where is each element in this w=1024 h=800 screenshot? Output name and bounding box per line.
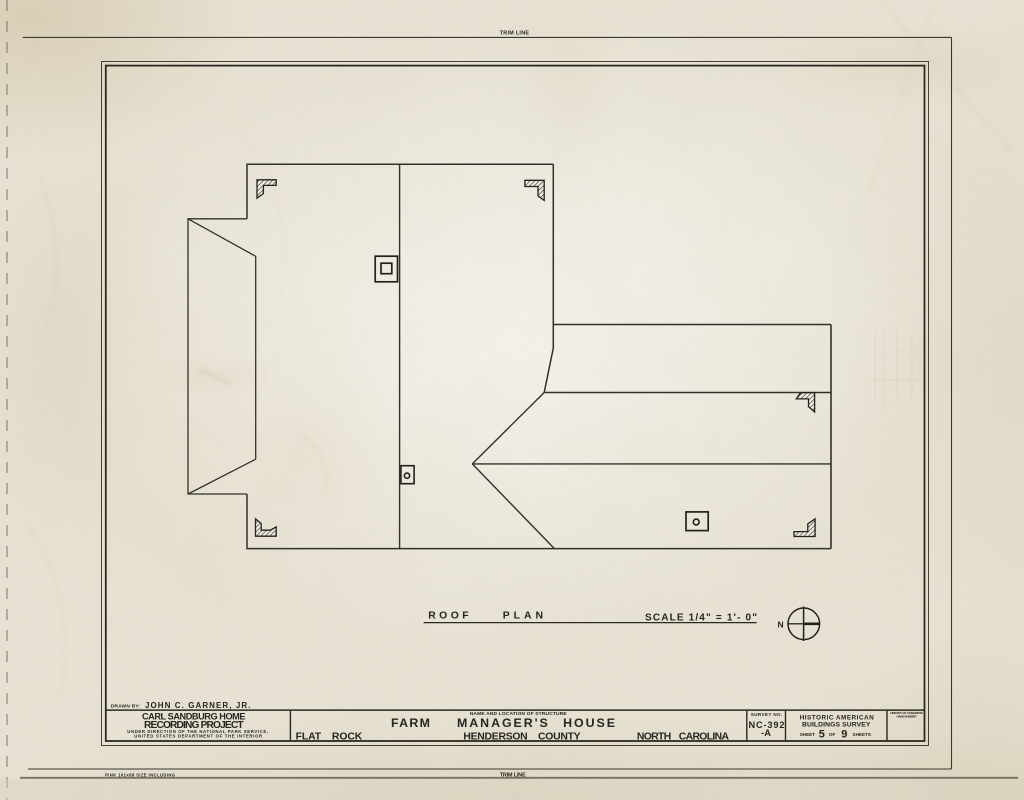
svg-text:-A: -A [761,728,771,738]
svg-text:SURVEY NO.: SURVEY NO. [751,712,783,717]
svg-text:HISTORIC AMERICAN: HISTORIC AMERICAN [800,714,874,721]
svg-text:HABS NUMBER: HABS NUMBER [897,715,918,719]
svg-text:SCALE 1/4" = 1'- 0": SCALE 1/4" = 1'- 0" [645,612,757,623]
svg-text:PINK 101x88 SIZE INCLUDING: PINK 101x88 SIZE INCLUDING [105,772,175,777]
svg-text:UNITED STATES DEPARTMENT OF TH: UNITED STATES DEPARTMENT OF THE INTERIOR [134,733,263,738]
svg-text:SHEET: SHEET [800,732,816,737]
svg-text:N: N [778,620,784,630]
svg-text:DRAWN BY:: DRAWN BY: [111,704,141,710]
svg-text:HENDERSON COUNTY: HENDERSON COUNTY [463,732,580,743]
svg-text:MANAGER'S HOUSE: MANAGER'S HOUSE [457,716,615,730]
svg-text:FARM: FARM [391,716,430,730]
svg-text:9: 9 [841,729,847,741]
svg-text:FLAT ROCK: FLAT ROCK [296,732,363,743]
svg-text:SHEETS: SHEETS [853,732,871,737]
svg-text:TRIM LINE: TRIM LINE [500,31,530,37]
svg-text:JOHN C. GARNER, JR.: JOHN C. GARNER, JR. [145,701,250,710]
svg-text:OF: OF [829,732,836,737]
svg-text:BUILDINGS SURVEY: BUILDINGS SURVEY [802,721,871,728]
svg-text:5: 5 [819,729,825,741]
svg-text:NORTH CAROLINA: NORTH CAROLINA [637,732,730,743]
